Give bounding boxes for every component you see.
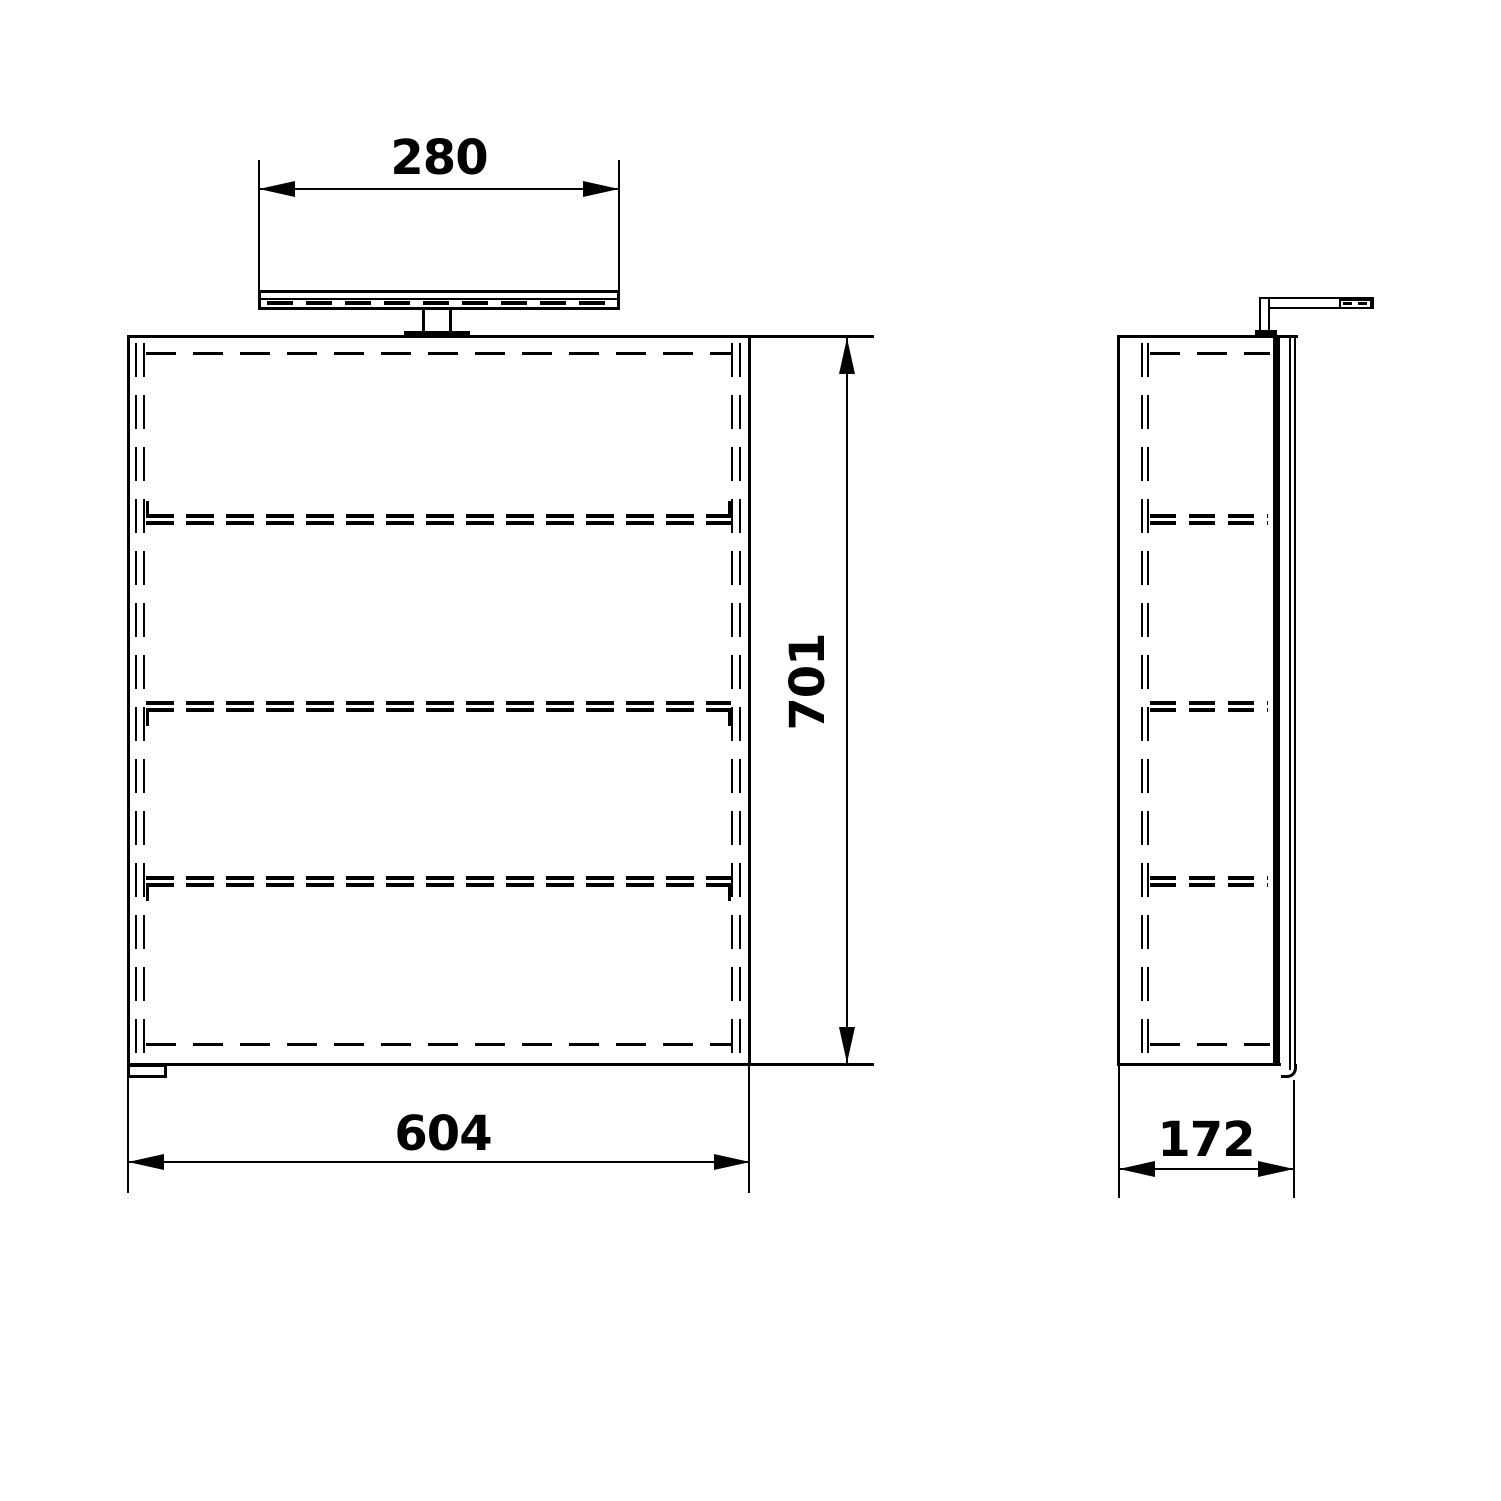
front-lamp-tube-dashed-line <box>267 301 611 305</box>
side-shelf-2-line-lower <box>1150 708 1268 712</box>
side-shelf-2-line-upper <box>1150 701 1268 705</box>
side-shelf-3-line-lower <box>1150 883 1268 887</box>
front-lamp-mounting-plate <box>404 331 470 337</box>
dim-280-arrowhead-right <box>583 181 619 197</box>
side-door-bottom-hook <box>1281 1064 1297 1078</box>
front-lamp-stem-left <box>422 310 425 333</box>
dim-604-extension-line-right <box>748 1066 750 1193</box>
front-lamp-bar <box>258 290 620 310</box>
front-view-bottom-edge <box>127 1063 874 1066</box>
dim-604-arrowhead-right <box>714 1154 750 1170</box>
side-view-bottom-edge <box>1117 1063 1281 1066</box>
front-view-left-edge <box>127 335 130 1066</box>
side-interior-dashed-top <box>1150 352 1270 355</box>
front-lamp-inner-line <box>260 298 618 300</box>
dim-280-extension-line-left <box>258 160 260 290</box>
front-shelf-1-line-lower <box>146 521 731 525</box>
front-shelf-2-end-tick-left <box>146 712 149 726</box>
front-shelf-2-end-tick-right <box>728 712 731 726</box>
front-shelf-3-end-tick-right <box>728 887 731 901</box>
front-foot-block <box>127 1064 167 1078</box>
dim-701-arrowhead-top <box>839 338 855 374</box>
front-shelf-2-line-lower <box>146 708 731 712</box>
front-door-dashed-edge-bottom <box>146 1043 731 1046</box>
dim-280-extension-line-right <box>618 160 620 290</box>
side-door-pane-line-inner <box>1289 337 1291 1070</box>
front-door-dashed-edge-top <box>146 352 731 355</box>
front-lamp-stem-right <box>449 310 452 333</box>
dim-604-label: 604 <box>373 1108 513 1160</box>
side-shelf-3-line-upper <box>1150 876 1268 880</box>
side-lamp-head-dashed-line <box>1343 302 1368 305</box>
side-view-left-edge <box>1117 335 1120 1066</box>
dim-604-extension-line-left <box>127 1066 129 1193</box>
front-shelf-1-line-upper <box>146 514 731 518</box>
side-shelf-1-line-lower <box>1150 521 1268 525</box>
front-door-dashed-edge-right-inner <box>731 343 733 1060</box>
side-mirror-door-profile <box>1273 335 1280 1066</box>
front-shelf-3-end-tick-left <box>146 887 149 901</box>
dim-280-dimension-line <box>259 188 619 190</box>
side-lamp-stem-right <box>1268 297 1270 331</box>
front-view-right-edge <box>748 335 751 1066</box>
side-interior-dashed-line-outer <box>1141 343 1143 1060</box>
dim-701-arrowhead-bottom <box>839 1027 855 1063</box>
side-interior-dashed-bottom <box>1150 1043 1270 1046</box>
side-interior-dashed-line-inner <box>1147 343 1149 1060</box>
front-shelf-3-line-upper <box>146 876 731 880</box>
dim-604-arrowhead-left <box>128 1154 164 1170</box>
front-view-top-edge <box>127 335 874 338</box>
front-shelf-3-line-lower <box>146 883 731 887</box>
dim-172-label: 172 <box>1136 1114 1276 1166</box>
side-lamp-arm-end <box>1372 297 1374 309</box>
dim-280-label: 280 <box>369 132 509 184</box>
dim-701-dimension-line <box>846 337 848 1064</box>
side-lamp-mounting-plate <box>1255 330 1277 336</box>
side-door-pane-line-outer <box>1294 337 1296 1070</box>
dim-172-extension-line-right <box>1293 1080 1295 1198</box>
front-door-dashed-edge-right-outer <box>739 343 741 1060</box>
front-door-dashed-edge-left-outer <box>135 343 137 1060</box>
dim-701-label: 701 <box>782 612 834 752</box>
front-shelf-1-end-tick-left <box>146 501 149 515</box>
technical-drawing-canvas: 280 701 604 172 <box>0 0 1501 1501</box>
front-shelf-1-end-tick-right <box>728 501 731 515</box>
side-shelf-1-line-upper <box>1150 514 1268 518</box>
dim-172-extension-line-left <box>1118 1066 1120 1198</box>
dim-280-arrowhead-left <box>259 181 295 197</box>
side-lamp-stem-left <box>1259 297 1261 331</box>
front-door-dashed-edge-left-inner <box>143 343 145 1060</box>
front-shelf-2-line-upper <box>146 701 731 705</box>
